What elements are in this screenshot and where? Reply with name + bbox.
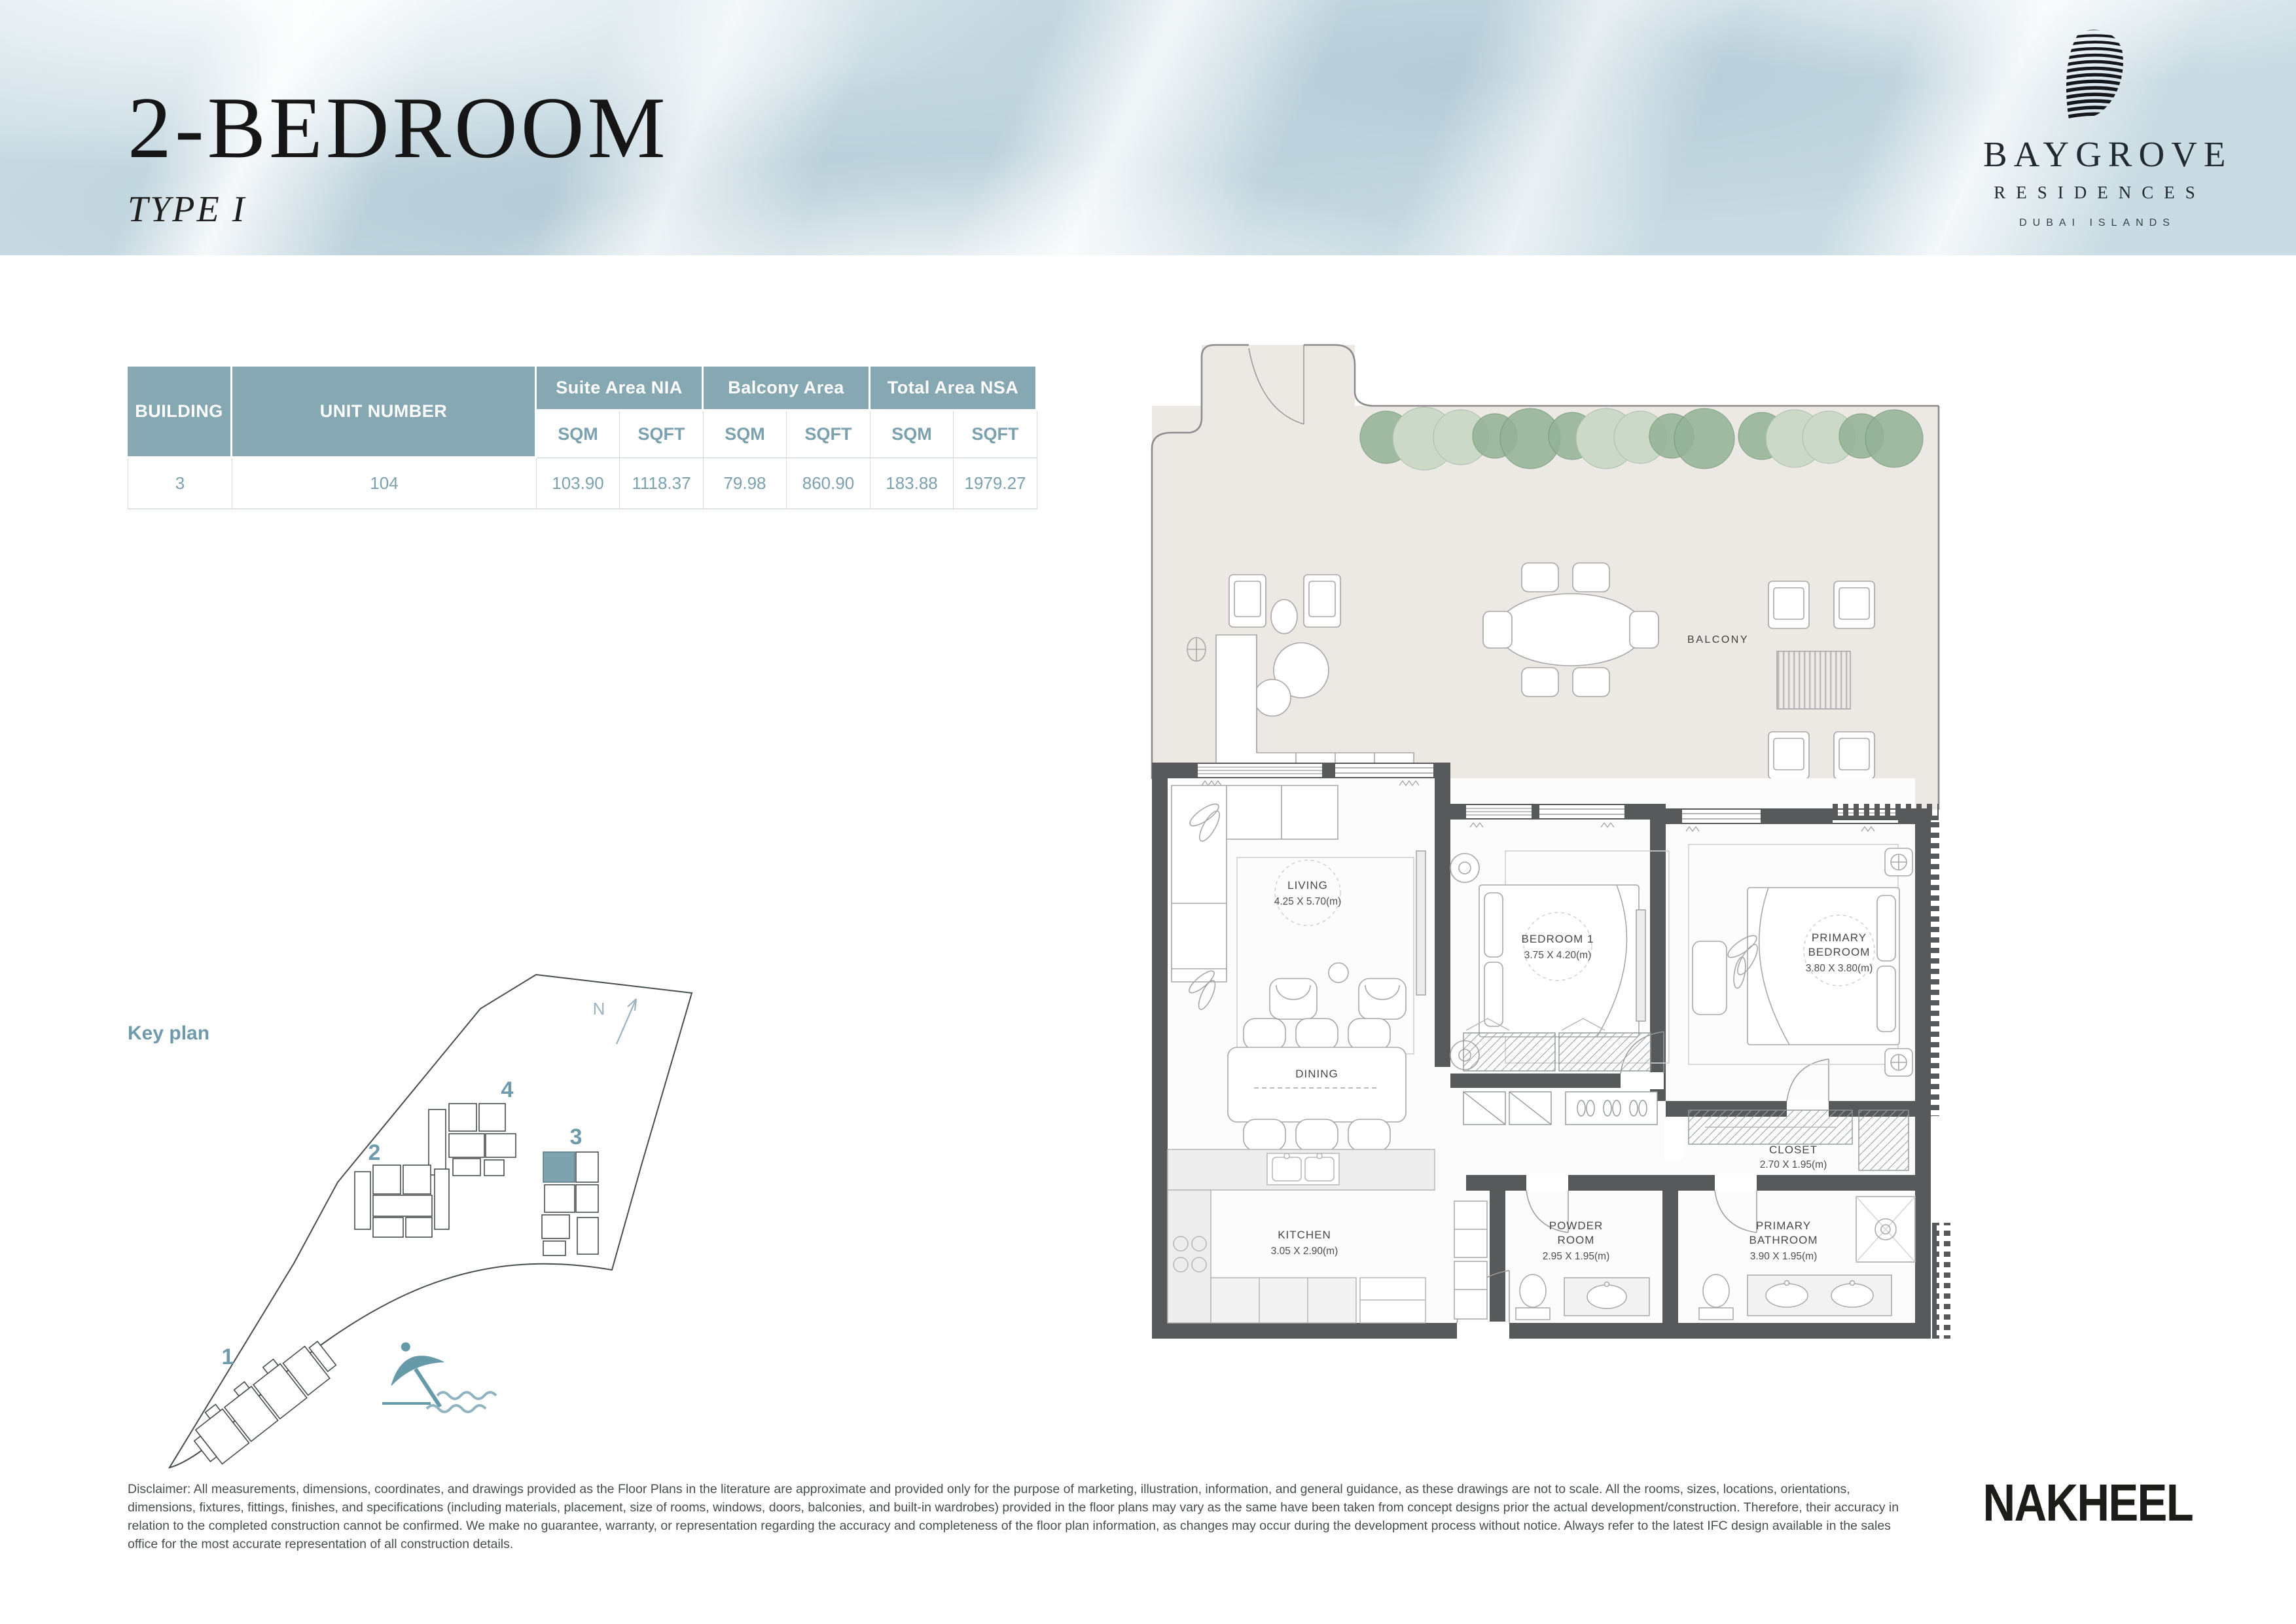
- powder-room-fixtures: [1516, 1274, 1649, 1320]
- room-label-bedroom1: BEDROOM 1: [1521, 933, 1594, 945]
- room-dims-kitchen: 3.05 X 2.90(m): [1271, 1246, 1338, 1257]
- keyplan-building-3: [542, 1152, 598, 1255]
- subheader-suite-sqm: SQM: [537, 411, 620, 458]
- room-dims-primary: 3.80 X 3.80(m): [1806, 963, 1873, 974]
- keyplan-label-4: 4: [501, 1077, 514, 1102]
- cell-balcony-sqft: 860.90: [787, 458, 870, 509]
- cell-suite-sqft: 1118.37: [620, 458, 704, 509]
- room-dims-powder: 2.95 X 1.95(m): [1543, 1251, 1610, 1262]
- keyplan-label-2: 2: [368, 1140, 381, 1165]
- title-block: 2-BEDROOM TYPE I: [128, 84, 669, 230]
- brand-name: BAYGROVE: [1983, 134, 2212, 175]
- cell-total-sqm: 183.88: [870, 458, 954, 509]
- keyplan-label-3: 3: [570, 1125, 583, 1149]
- cell-suite-sqm: 103.90: [537, 458, 620, 509]
- room-dims-bedroom1: 3.75 X 4.20(m): [1524, 950, 1592, 961]
- page-title: 2-BEDROOM: [128, 84, 669, 171]
- nakheel-logo: NAKHEEL: [1973, 1477, 2193, 1529]
- room-label-balcony: BALCONY: [1687, 634, 1749, 645]
- area-table: BUILDING UNIT NUMBER Suite Area NIA Balc…: [128, 367, 1037, 509]
- subheader-total-sqft: SQFT: [954, 411, 1037, 458]
- room-label-primary-2: BEDROOM: [1808, 946, 1871, 958]
- table-row: 3 104 103.90 1118.37 79.98 860.90 183.88…: [128, 458, 1037, 509]
- balcony-planters: [1360, 407, 1923, 470]
- cell-unit-number: 104: [232, 458, 537, 509]
- cell-total-sqft: 1979.27: [954, 458, 1037, 509]
- room-label-closet: CLOSET: [1769, 1144, 1818, 1156]
- room-dims-closet: 2.70 X 1.95(m): [1760, 1159, 1827, 1170]
- floor-plan: BALCONY: [1139, 327, 1990, 1355]
- page-subtitle: TYPE I: [128, 189, 669, 230]
- room-label-pbath-2: BATHROOM: [1749, 1234, 1818, 1246]
- room-dims-living: 4.25 X 5.70(m): [1274, 896, 1342, 907]
- brochure-page: 2-BEDROOM TYPE I: [0, 0, 2296, 1624]
- cell-balcony-sqm: 79.98: [704, 458, 787, 509]
- room-label-living: LIVING: [1287, 879, 1328, 892]
- room-label-powder-1: POWDER: [1549, 1219, 1604, 1232]
- header-water-banner: 2-BEDROOM TYPE I: [0, 0, 2296, 255]
- keyplan-building-2: [355, 1165, 449, 1237]
- subheader-suite-sqft: SQFT: [620, 411, 704, 458]
- room-dims-pbath: 3.90 X 1.95(m): [1750, 1251, 1818, 1262]
- keyplan-building-1: [185, 1331, 341, 1468]
- room-label-kitchen: KITCHEN: [1278, 1229, 1331, 1241]
- col-header-unit-number: UNIT NUMBER: [232, 367, 537, 458]
- room-label-dining: DINING: [1295, 1068, 1338, 1080]
- north-label: N: [593, 999, 605, 1019]
- cell-building: 3: [128, 458, 232, 509]
- baygrove-logo: BAYGROVE RESIDENCES DUBAI ISLANDS: [1977, 25, 2212, 229]
- brand-location: DUBAI ISLANDS: [1982, 217, 2212, 229]
- dining-furniture: [1228, 1019, 1406, 1151]
- col-header-total-area: Total Area NSA: [870, 367, 1037, 411]
- subheader-balcony-sqm: SQM: [704, 411, 787, 458]
- room-label-powder-2: ROOM: [1558, 1234, 1595, 1246]
- col-header-suite-area: Suite Area NIA: [537, 367, 704, 411]
- highlighted-unit: [543, 1152, 575, 1182]
- subheader-balcony-sqft: SQFT: [787, 411, 870, 458]
- room-label-pbath-1: PRIMARY: [1756, 1219, 1811, 1232]
- baygrove-logo-icon: [2062, 25, 2127, 122]
- beach-umbrella-icon: [378, 1331, 460, 1421]
- disclaimer-text: Disclaimer: All measurements, dimensions…: [128, 1481, 1905, 1554]
- col-header-building: BUILDING: [128, 367, 232, 458]
- brand-division: RESIDENCES: [1987, 183, 2212, 203]
- keyplan-building-4: [429, 1104, 516, 1176]
- north-arrow-icon: [617, 999, 636, 1044]
- keyplan-label-1: 1: [222, 1344, 234, 1369]
- subheader-total-sqm: SQM: [870, 411, 954, 458]
- col-header-balcony-area: Balcony Area: [704, 367, 870, 411]
- room-label-primary-1: PRIMARY: [1812, 931, 1867, 944]
